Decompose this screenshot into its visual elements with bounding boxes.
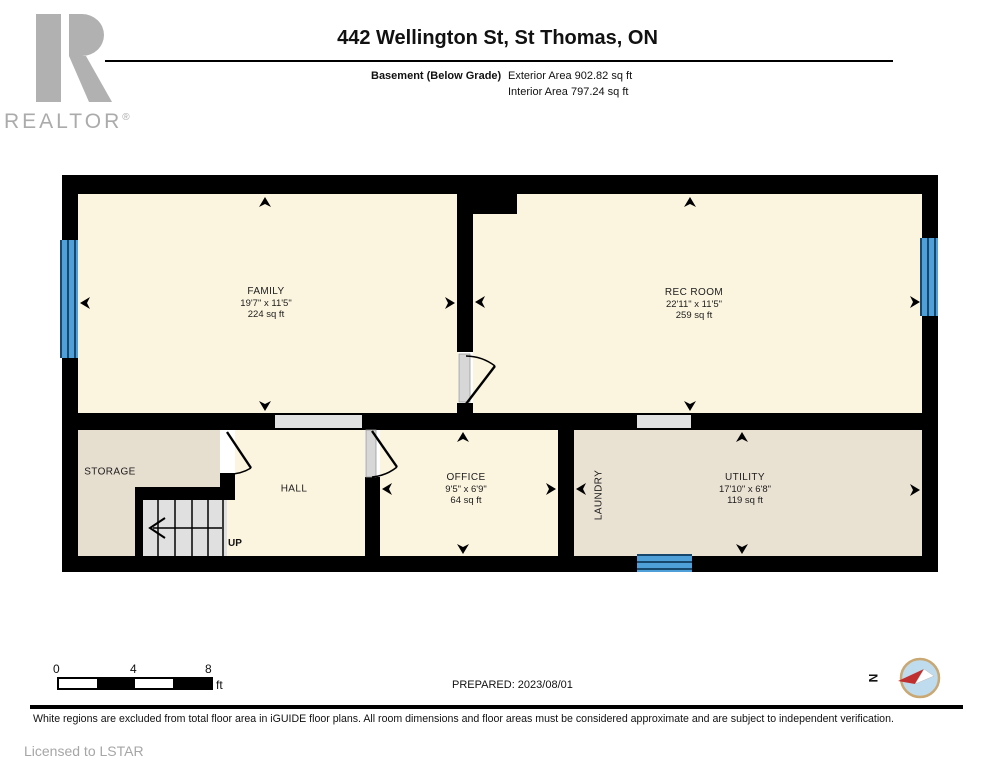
wall-family-rec-divider	[457, 194, 473, 352]
room-label-utility: UTILITY 17'10" x 6'8" 119 sq ft	[719, 472, 771, 507]
storage-area-top	[78, 430, 222, 487]
scale-segment	[135, 679, 173, 688]
wall-stairs-left	[135, 500, 143, 556]
realtor-text: REALTOR	[4, 110, 122, 133]
stairs-area	[143, 500, 227, 556]
scale-bar	[57, 677, 213, 690]
room-label-office: OFFICE 9'5" x 6'9" 64 sq ft	[445, 472, 487, 507]
floorplan-page: REALTOR® 442 Wellington St, St Thomas, O…	[0, 0, 995, 768]
compass-north-label: N	[866, 674, 880, 683]
title-divider	[105, 60, 893, 62]
stairs-up-label: UP	[228, 538, 242, 549]
room-label-rec-room: REC ROOM 22'11" x 11'5" 259 sq ft	[665, 287, 723, 322]
wall-bottom	[62, 556, 938, 572]
wall-top	[62, 175, 938, 194]
storage-door-gap	[220, 430, 235, 473]
wall-hall-office	[365, 477, 380, 556]
interior-area-label: Interior Area 797.24 sq ft	[508, 86, 628, 98]
scale-unit-label: ft	[216, 678, 223, 692]
wall-storage-bottom	[135, 487, 235, 500]
disclaimer-text: White regions are excluded from total fl…	[33, 713, 968, 725]
room-label-storage: STORAGE	[84, 466, 136, 478]
floor-label: Basement (Below Grade)	[371, 70, 501, 82]
room-label-hall: HALL	[281, 483, 308, 495]
scale-segment	[173, 679, 211, 688]
page-title: 442 Wellington St, St Thomas, ON	[0, 27, 995, 50]
wall-chimney-bump	[471, 194, 517, 214]
registered-mark: ®	[122, 112, 132, 123]
window-left	[60, 240, 78, 358]
window-bottom	[637, 554, 692, 572]
scale-segment	[59, 679, 97, 688]
wall-storage-hall-stub	[220, 473, 235, 487]
wall-left	[62, 175, 78, 572]
prepared-date-label: PREPARED: 2023/08/01	[452, 679, 573, 691]
wall-office-laundry	[558, 413, 574, 556]
scale-tick-4: 4	[130, 662, 137, 676]
room-label-family: FAMILY 19'7" x 11'5" 224 sq ft	[240, 286, 291, 321]
wall-divider-stub	[457, 403, 473, 413]
footer-divider	[30, 705, 963, 709]
scale-tick-0: 0	[53, 662, 60, 676]
scale-segment	[97, 679, 135, 688]
exterior-area-label: Exterior Area 902.82 sq ft	[508, 70, 632, 82]
realtor-wordmark: REALTOR®	[4, 110, 154, 134]
opening-family-hall	[275, 413, 362, 430]
scale-tick-8: 8	[205, 662, 212, 676]
license-text: Licensed to LSTAR	[24, 743, 144, 759]
storage-area-left	[78, 487, 135, 556]
opening-rec-utility	[637, 413, 691, 430]
window-right	[920, 238, 938, 316]
compass-icon	[898, 659, 939, 697]
wall-right	[922, 175, 938, 572]
room-label-laundry: LAUNDRY	[593, 470, 605, 520]
wall-middle	[62, 413, 938, 430]
